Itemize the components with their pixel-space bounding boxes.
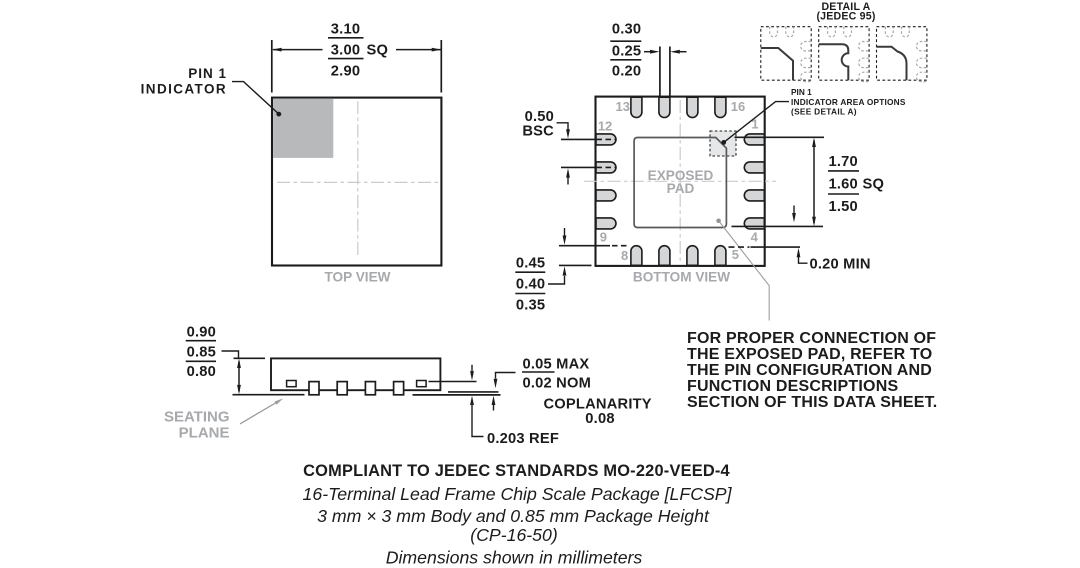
svg-text:PIN 1: PIN 1 (791, 87, 812, 97)
svg-text:8: 8 (621, 248, 628, 263)
svg-text:0.20 MIN: 0.20 MIN (810, 257, 871, 273)
svg-text:(CP-16-50): (CP-16-50) (470, 525, 557, 545)
svg-text:SQ: SQ (367, 43, 389, 59)
svg-text:0.203 REF: 0.203 REF (487, 431, 559, 447)
svg-text:INDICATOR AREA OPTIONS: INDICATOR AREA OPTIONS (791, 97, 906, 107)
svg-text:0.20: 0.20 (612, 64, 641, 80)
svg-text:THE PIN CONFIGURATION AND: THE PIN CONFIGURATION AND (687, 362, 932, 379)
svg-text:9: 9 (600, 230, 607, 245)
svg-text:0.90: 0.90 (187, 325, 216, 341)
svg-text:3.00: 3.00 (331, 43, 360, 59)
svg-text:PLANE: PLANE (179, 425, 230, 442)
svg-text:0.02 NOM: 0.02 NOM (523, 376, 592, 392)
svg-text:BOTTOM VIEW: BOTTOM VIEW (633, 270, 730, 285)
svg-text:FOR PROPER CONNECTION OF: FOR PROPER CONNECTION OF (687, 330, 936, 347)
svg-text:PAD: PAD (667, 181, 695, 196)
svg-text:16-Terminal Lead Frame Chip Sc: 16-Terminal Lead Frame Chip Scale Packag… (303, 484, 733, 504)
svg-text:0.40: 0.40 (516, 276, 545, 292)
svg-text:13: 13 (616, 99, 630, 114)
svg-text:0.80: 0.80 (187, 364, 216, 380)
svg-text:BSC: BSC (522, 123, 554, 139)
svg-text:3.10: 3.10 (331, 22, 360, 38)
svg-text:PIN 1: PIN 1 (188, 66, 227, 81)
svg-text:0.05 MAX: 0.05 MAX (523, 356, 590, 372)
svg-text:0.35: 0.35 (516, 298, 545, 314)
svg-text:1.50: 1.50 (829, 199, 858, 215)
svg-text:4: 4 (751, 230, 759, 245)
svg-text:INDICATOR: INDICATOR (141, 81, 227, 96)
svg-text:TOP VIEW: TOP VIEW (325, 270, 391, 285)
svg-text:SQ: SQ (863, 177, 885, 193)
svg-text:3 mm × 3 mm Body and 0.85 mm P: 3 mm × 3 mm Body and 0.85 mm Package Hei… (317, 506, 710, 526)
svg-text:1: 1 (751, 117, 758, 132)
svg-text:16: 16 (731, 99, 745, 114)
svg-text:0.30: 0.30 (612, 22, 641, 38)
svg-text:COMPLIANT TO JEDEC STANDARDS M: COMPLIANT TO JEDEC STANDARDS MO-220-VEED… (303, 462, 730, 480)
svg-text:1.60: 1.60 (829, 177, 858, 193)
svg-text:SECTION OF THIS DATA SHEET.: SECTION OF THIS DATA SHEET. (687, 394, 937, 411)
svg-text:2.90: 2.90 (331, 64, 360, 80)
svg-text:(SEE DETAIL A): (SEE DETAIL A) (791, 107, 857, 117)
svg-text:12: 12 (598, 119, 612, 134)
svg-text:0.85: 0.85 (187, 344, 216, 360)
svg-text:FUNCTION DESCRIPTIONS: FUNCTION DESCRIPTIONS (687, 378, 898, 395)
svg-text:0.25: 0.25 (612, 44, 641, 60)
svg-text:0.45: 0.45 (516, 255, 545, 271)
svg-text:Dimensions shown in millimeter: Dimensions shown in millimeters (386, 548, 643, 568)
svg-text:1.70: 1.70 (829, 154, 858, 170)
svg-text:0.08: 0.08 (585, 411, 614, 427)
svg-text:(JEDEC 95): (JEDEC 95) (816, 10, 875, 22)
svg-text:5: 5 (732, 247, 739, 262)
svg-text:THE EXPOSED PAD, REFER TO: THE EXPOSED PAD, REFER TO (687, 346, 932, 363)
svg-text:SEATING: SEATING (164, 409, 230, 426)
